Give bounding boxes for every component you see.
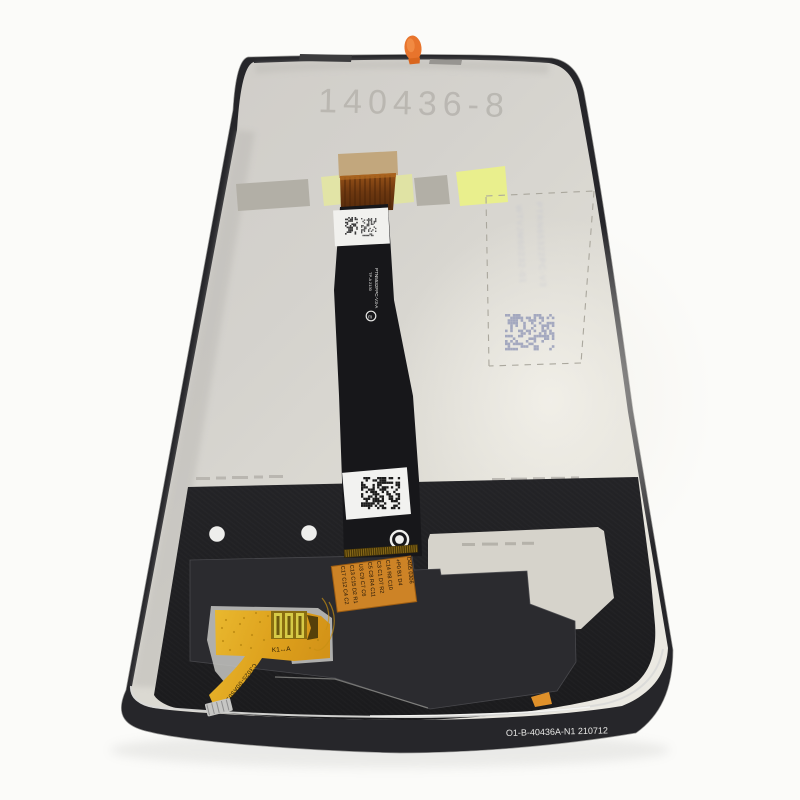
svg-text:PTN5532FPC-V3-A: PTN5532FPC-V3-A [374,268,379,309]
svg-text:m: m [368,315,372,321]
svg-text:K1↔A: K1↔A [272,646,292,654]
svg-text:140436-8: 140436-8 [318,82,511,125]
svg-text:TP-A 2130: TP-A 2130 [368,272,373,292]
